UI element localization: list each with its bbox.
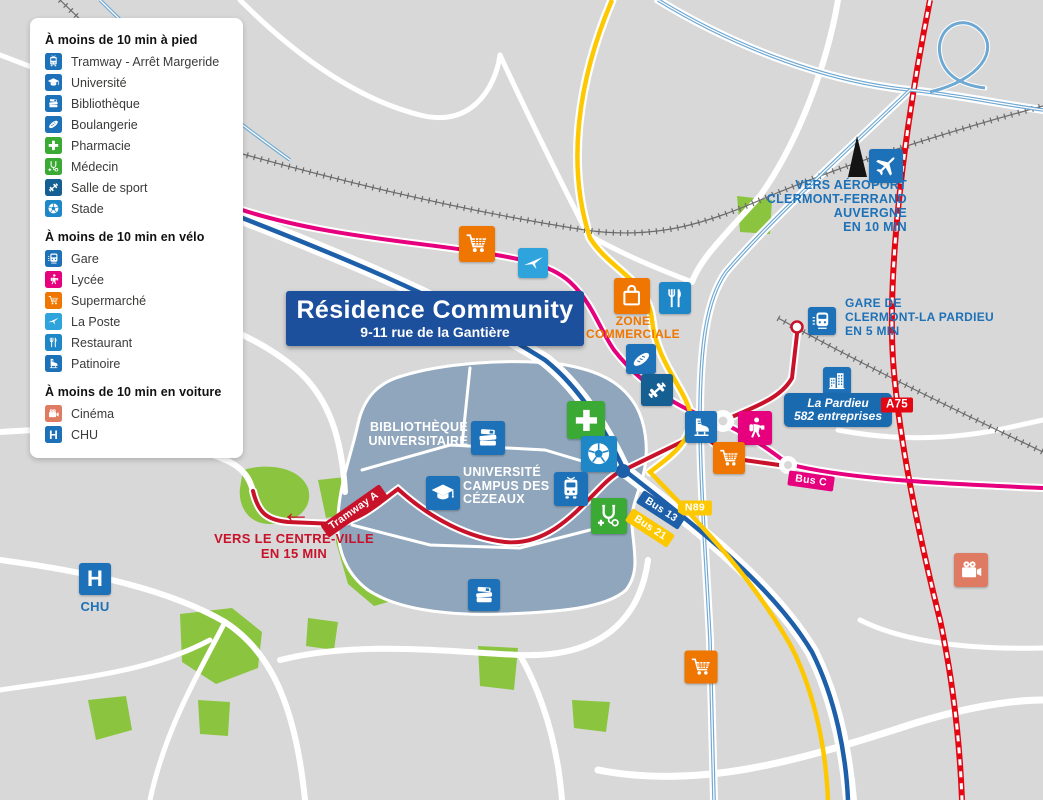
legend-item-tramway: Tramway - Arrêt Margeride	[45, 53, 233, 70]
hospital-h-icon: H	[45, 426, 62, 443]
tram-stop-icon	[554, 472, 588, 506]
books-icon	[45, 95, 62, 112]
legend-item-salle-de-sport: Salle de sport	[45, 179, 233, 196]
residence-banner: Résidence Community 9-11 rue de la Ganti…	[286, 291, 584, 346]
legend-item-bibliotheque: Bibliothèque	[45, 95, 233, 112]
legend-item-label: Restaurant	[71, 336, 132, 350]
hospital-h-letter: H	[87, 568, 103, 590]
bakery-icon	[626, 344, 656, 374]
tram-icon	[45, 53, 62, 70]
supermarket-icon	[685, 651, 718, 684]
stethoscope-icon	[45, 158, 62, 175]
legend-item-universite: Université	[45, 74, 233, 91]
library-icon	[468, 579, 500, 611]
restaurant-icon	[659, 282, 691, 314]
high-school-icon	[738, 411, 772, 445]
legend-item-cinema: Cinéma	[45, 405, 233, 422]
supermarket-icon	[459, 226, 495, 262]
legend-item-supermarche: Supermarché	[45, 292, 233, 309]
la-pardieu-line2: 582 entreprises	[794, 409, 882, 423]
doctor-icon	[591, 498, 627, 534]
university-library-label: BIBLIOTHÈQUE UNIVERSITAIRE	[368, 420, 468, 448]
graduation-cap-icon	[45, 74, 62, 91]
commercial-zone-label: ZONE COMMERCIALE	[586, 315, 680, 341]
stadium-icon	[581, 436, 617, 472]
university-library-icon	[471, 421, 505, 455]
baguette-icon	[45, 116, 62, 133]
residence-address: 9-11 rue de la Gantière	[360, 324, 509, 340]
legend-item-pharmacie: Pharmacie	[45, 137, 233, 154]
student-icon	[45, 271, 62, 288]
n89-badge: N89	[678, 501, 712, 516]
supermarket-icon	[713, 442, 745, 474]
residence-location-dot	[616, 464, 630, 478]
film-camera-icon	[45, 405, 62, 422]
chu-label: CHU	[80, 600, 109, 614]
la-pardieu-line1: La Pardieu	[807, 396, 868, 410]
cart-icon	[45, 292, 62, 309]
legend-item-label: Médecin	[71, 160, 118, 174]
legend-item-label: Boulangerie	[71, 118, 138, 132]
map-stage: H VERS AÉROPORT CLERMONT-FERRAND AUVERGN…	[0, 0, 1043, 800]
ice-rink-icon	[685, 411, 717, 443]
gym-icon	[641, 374, 673, 406]
soccer-ball-icon	[45, 200, 62, 217]
train-icon	[45, 250, 62, 267]
university-campus-label: UNIVERSITÉ CAMPUS DES CÉZEAUX	[463, 466, 549, 507]
fork-knife-icon	[45, 334, 62, 351]
left-arrow-icon: ←	[281, 498, 311, 528]
train-station-icon	[808, 307, 836, 335]
legend-item-label: Gare	[71, 252, 99, 266]
legend-item-label: Tramway - Arrêt Margeride	[71, 55, 219, 69]
shopping-bag-icon	[614, 278, 650, 314]
hospital-icon: H	[79, 563, 111, 595]
legend-item-lycee: Lycée	[45, 271, 233, 288]
cross-icon	[45, 137, 62, 154]
legend-section-car-title: À moins de 10 min en voiture	[45, 385, 233, 399]
legend-item-stade: Stade	[45, 200, 233, 217]
legend-item-medecin: Médecin	[45, 158, 233, 175]
legend-item-label: Cinéma	[71, 407, 114, 421]
legend-item-label: Pharmacie	[71, 139, 131, 153]
legend-item-chu: H CHU	[45, 426, 233, 443]
legend-item-la-poste: La Poste	[45, 313, 233, 330]
city-center-label: VERS LE CENTRE-VILLE EN 15 MIN	[214, 531, 374, 561]
la-pardieu-badge: La Pardieu582 entreprises	[784, 393, 892, 427]
legend-item-label: Supermarché	[71, 294, 146, 308]
dumbbell-icon	[45, 179, 62, 196]
legend-item-gare: Gare	[45, 250, 233, 267]
legend-item-patinoire: Patinoire	[45, 355, 233, 372]
legend-item-label: CHU	[71, 428, 98, 442]
legend-item-label: La Poste	[71, 315, 120, 329]
a75-badge: A75	[881, 398, 913, 413]
legend-item-label: Lycée	[71, 273, 104, 287]
legend-item-label: Patinoire	[71, 357, 120, 371]
station-route-end-marker	[792, 322, 803, 333]
residence-title: Résidence Community	[296, 297, 573, 323]
bird-icon	[45, 313, 62, 330]
ice-skate-icon	[45, 355, 62, 372]
station-label: GARE DE CLERMONT-LA PARDIEU EN 5 MIN	[845, 296, 994, 338]
legend-item-label: Université	[71, 76, 127, 90]
legend-section-bike-title: À moins de 10 min en vélo	[45, 230, 233, 244]
hospital-h-letter: H	[49, 429, 58, 441]
legend-panel: À moins de 10 min à pied Tramway - Arrêt…	[30, 18, 243, 458]
legend-item-restaurant: Restaurant	[45, 334, 233, 351]
companies-icon	[823, 367, 851, 395]
la-poste-icon	[518, 248, 548, 278]
legend-item-boulangerie: Boulangerie	[45, 116, 233, 133]
legend-item-label: Stade	[71, 202, 104, 216]
legend-item-label: Salle de sport	[71, 181, 147, 195]
cinema-icon	[954, 553, 988, 587]
legend-section-walk-title: À moins de 10 min à pied	[45, 33, 233, 47]
university-icon	[426, 476, 460, 510]
pharmacy-icon	[567, 401, 605, 439]
legend-item-label: Bibliothèque	[71, 97, 140, 111]
airport-label: VERS AÉROPORT CLERMONT-FERRAND AUVERGNE …	[767, 178, 907, 234]
